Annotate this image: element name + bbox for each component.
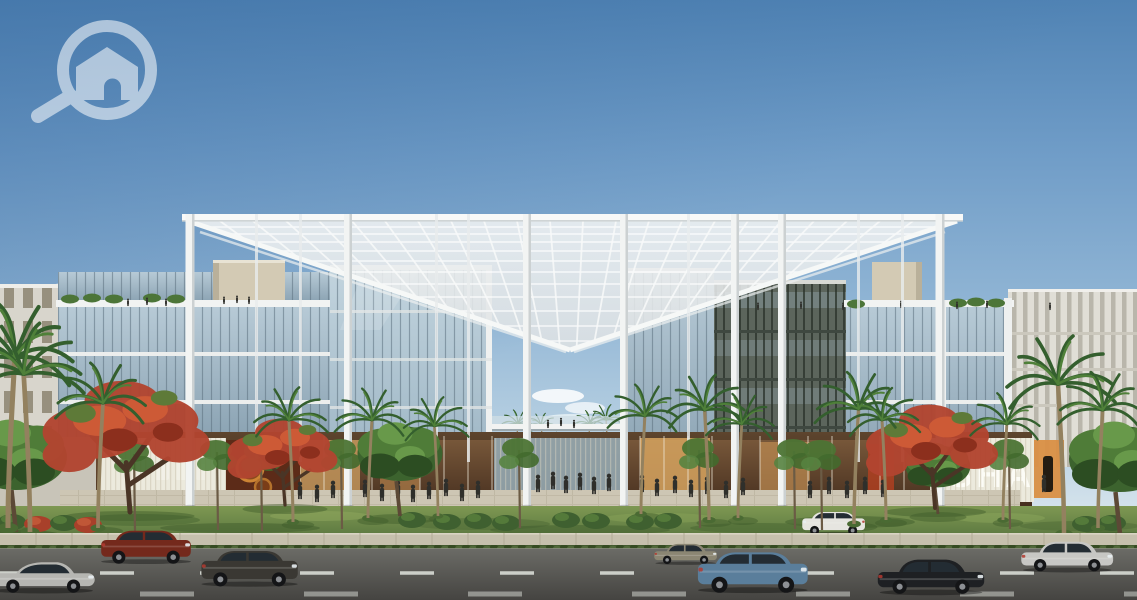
rooftop-plant: [987, 299, 1005, 308]
rooftop-railing-left: [56, 300, 352, 307]
bush-highlight: [1075, 517, 1089, 525]
rooftop-plant: [167, 295, 185, 304]
rooftop-plant: [949, 299, 967, 308]
bush-highlight: [401, 513, 415, 521]
architectural-rendering-image: SHA: [0, 0, 1137, 600]
rooftop-plant: [105, 295, 123, 304]
bush-highlight: [495, 516, 509, 524]
bush-highlight: [555, 513, 569, 521]
rooftop-plant: [847, 300, 865, 309]
bush-highlight: [657, 514, 671, 522]
rooftop-plant: [83, 294, 101, 303]
bush-highlight: [585, 514, 599, 522]
bush-highlight: [1101, 516, 1115, 524]
stone-core-right: [872, 262, 922, 304]
bush-highlight: [53, 516, 67, 524]
gap-bridge: [492, 416, 624, 431]
rooftop-plant: [143, 294, 161, 303]
bush-highlight: [467, 514, 481, 522]
bush-highlight: [77, 518, 91, 526]
rooftop-plant: [61, 295, 79, 304]
rooftop-plant: [967, 298, 985, 307]
